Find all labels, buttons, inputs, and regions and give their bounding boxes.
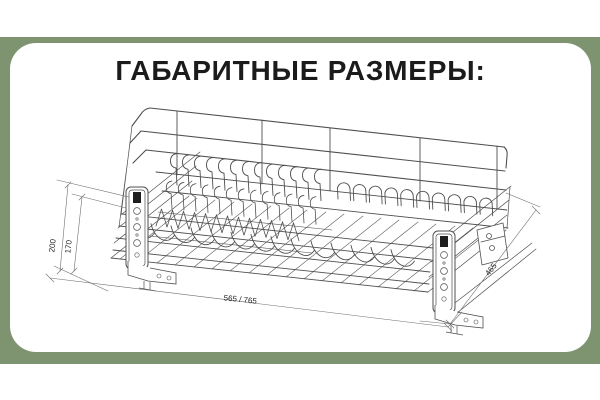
gallery-posts [177,111,497,209]
mounting-bracket-left [126,187,176,291]
dim-label-rack-height: 170 [63,239,73,254]
dimension-lines [46,180,540,331]
cup-holder-arches [338,183,493,216]
dim-label-bracket-height: 200 [47,238,57,253]
left-side-wall [111,126,200,258]
mounting-bracket-right [433,231,483,335]
rear-hardware-box [477,223,508,265]
gallery-rails [130,108,507,190]
dimensional-drawing: 200 170 565 / 765 465 [0,0,600,400]
dim-label-width: 565 / 765 [223,293,258,305]
plate-divider-hooks-row2 [166,181,316,224]
